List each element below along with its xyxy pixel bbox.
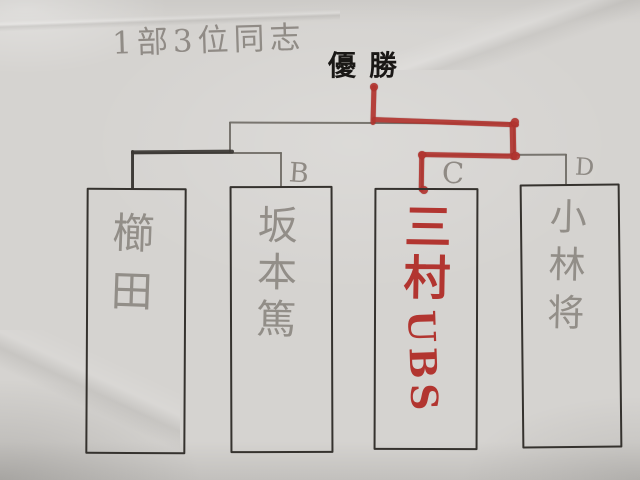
champion-label: 優勝 bbox=[328, 44, 410, 84]
paper-crease bbox=[380, 0, 640, 70]
player-name-d: 小林将 bbox=[534, 196, 592, 341]
champion-path-semifinal-horizontal bbox=[419, 152, 517, 159]
player-name-b: 坂本篤 bbox=[243, 204, 303, 346]
player-name-c: 三村 UBS bbox=[388, 202, 457, 415]
player-name-c-kanji: 三村 bbox=[387, 201, 458, 304]
paper-photo: 1部3位同志 優勝 B C D 櫛田 坂本篤 三村 UBS 小林将 bbox=[0, 0, 640, 480]
red-ink-blob bbox=[512, 152, 520, 160]
red-ink-blob bbox=[418, 151, 426, 159]
seed-label-d: D bbox=[574, 153, 595, 182]
player-name-c-latin: UBS bbox=[399, 309, 447, 416]
slot-b-connector bbox=[280, 152, 282, 188]
red-ink-blob bbox=[511, 118, 519, 126]
slot-d-connector bbox=[565, 154, 567, 186]
seed-label-b: B bbox=[288, 157, 310, 189]
champion-path-final-horizontal bbox=[372, 117, 519, 127]
red-ink-blob bbox=[370, 83, 378, 91]
player-name-a: 櫛田 bbox=[97, 210, 162, 328]
seed-label-c: C bbox=[441, 156, 464, 191]
traced-path-slot-a-horizontal bbox=[131, 150, 234, 154]
handwritten-note-title: 1部3位同志 bbox=[111, 10, 352, 63]
traced-path-slot-a-vertical bbox=[131, 150, 134, 190]
